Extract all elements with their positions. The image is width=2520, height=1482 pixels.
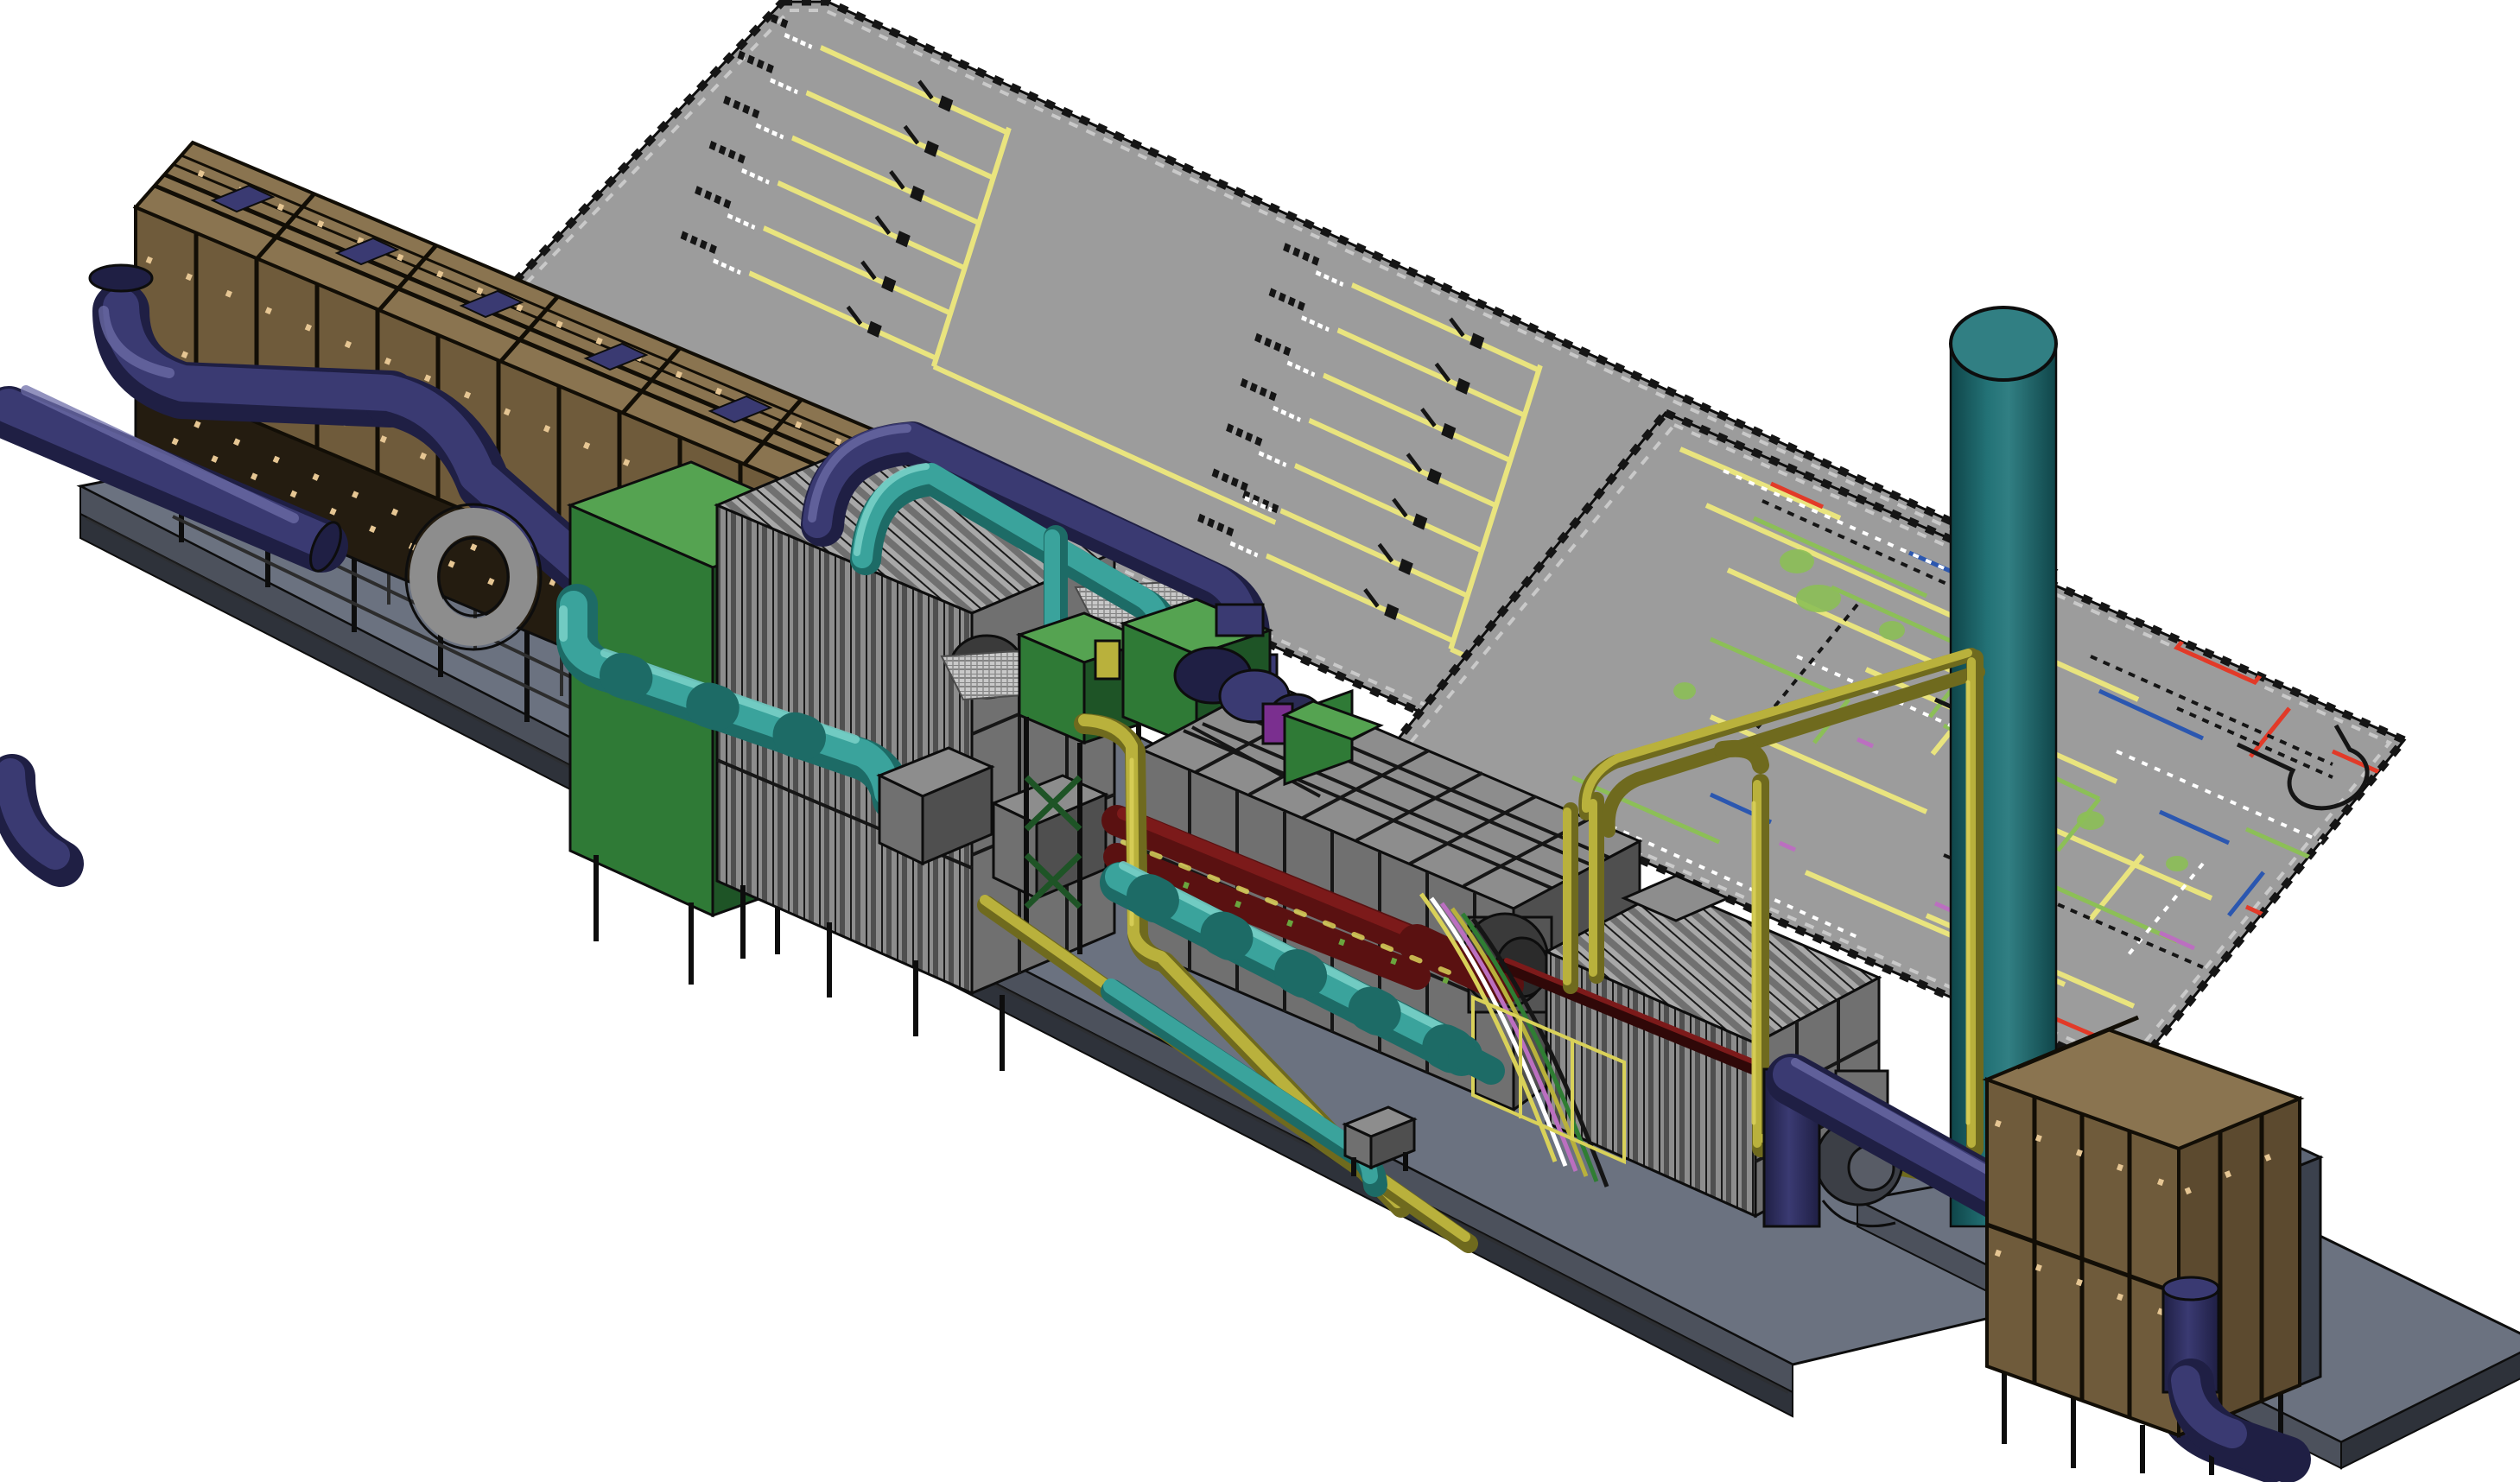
- stack-top-opening: [1951, 307, 2056, 380]
- cad-plant-render: [0, 0, 2520, 1482]
- air-intake-filter-house-right: [1987, 1017, 2300, 1475]
